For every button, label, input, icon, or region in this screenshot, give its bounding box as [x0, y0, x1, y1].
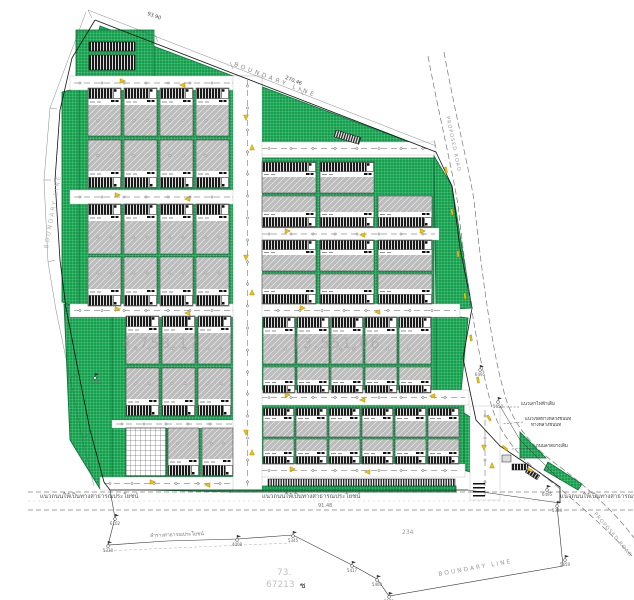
- office-mark: [150, 205, 153, 208]
- label-mark: [126, 174, 131, 175]
- roof-vent: [146, 236, 148, 238]
- label-mark: [147, 172, 151, 174]
- roof-vent: [169, 154, 171, 156]
- loading-dock: [89, 296, 114, 306]
- office-mark: [353, 409, 356, 412]
- label-mark: [133, 102, 137, 103]
- label-mark: [355, 452, 358, 454]
- label-mark: [322, 252, 327, 253]
- loading-dock: [379, 241, 425, 250]
- label-mark: [226, 400, 229, 402]
- manhole: [422, 469, 424, 471]
- office-mark: [386, 409, 389, 412]
- crosswalk-bar: [473, 487, 485, 489]
- label-mark: [404, 453, 408, 454]
- manhole: [400, 147, 402, 149]
- manhole: [312, 469, 314, 471]
- manhole: [246, 129, 248, 131]
- survey-point-label: 4008: [232, 542, 243, 547]
- manhole: [277, 309, 279, 311]
- label-mark: [353, 381, 357, 383]
- office-mark: [367, 241, 370, 244]
- label-mark: [388, 452, 391, 454]
- manhole: [143, 423, 145, 425]
- label-mark: [358, 329, 361, 331]
- green-area: [434, 156, 472, 310]
- label-mark: [198, 174, 203, 175]
- label-mark: [305, 453, 309, 454]
- survey-flag: [115, 514, 119, 517]
- label-mark: [387, 381, 391, 383]
- label-mark: [152, 172, 155, 174]
- manhole: [444, 396, 446, 398]
- label-mark: [169, 102, 173, 103]
- label-mark: [306, 213, 310, 215]
- label-mark: [205, 102, 209, 103]
- manhole: [101, 309, 103, 311]
- manhole: [145, 196, 147, 198]
- roof-vent: [97, 236, 99, 238]
- label-mark: [380, 214, 385, 215]
- label-mark: [219, 290, 223, 292]
- manhole: [290, 396, 292, 398]
- manhole: [246, 393, 248, 395]
- label-mark: [421, 417, 424, 419]
- label-mark: [388, 417, 391, 419]
- office-mark: [150, 89, 153, 92]
- survey-point: [107, 545, 110, 548]
- boundary-line: [155, 35, 158, 42]
- office-mark: [419, 460, 422, 463]
- office-mark: [114, 302, 117, 305]
- manhole: [312, 147, 314, 149]
- label-mark: [188, 290, 191, 292]
- manhole: [246, 327, 248, 329]
- label-mark: [371, 453, 375, 454]
- label-mark: [329, 252, 333, 253]
- loading-dock: [297, 409, 320, 416]
- office-mark: [390, 318, 393, 321]
- office-mark: [424, 318, 427, 321]
- label-mark: [205, 218, 209, 219]
- label-mark: [340, 331, 344, 332]
- label-mark: [128, 402, 133, 403]
- label-mark: [422, 290, 426, 292]
- manhole: [219, 482, 221, 484]
- label-mark: [205, 174, 209, 175]
- manhole: [268, 396, 270, 398]
- survey-point-label: 6495: [542, 492, 553, 497]
- manhole: [246, 239, 248, 241]
- loading-dock: [332, 386, 356, 393]
- office-mark: [222, 184, 225, 187]
- label-mark: [311, 213, 314, 215]
- loading-dock: [330, 409, 353, 416]
- manhole: [378, 396, 380, 398]
- label-mark: [223, 460, 227, 462]
- survey-flag: [108, 541, 112, 544]
- loading-dock: [125, 178, 150, 188]
- loading-dock: [264, 386, 288, 393]
- label-mark: [189, 460, 193, 462]
- label-mark: [224, 100, 227, 102]
- label-mark: [374, 331, 378, 332]
- label-mark: [364, 453, 369, 454]
- office-mark: [114, 205, 117, 208]
- label-mark: [133, 174, 137, 175]
- office-mark: [186, 89, 189, 92]
- manhole: [189, 82, 191, 84]
- manhole: [175, 482, 177, 484]
- roof-vent: [386, 348, 388, 350]
- label-mark: [162, 218, 167, 219]
- office-mark: [114, 89, 117, 92]
- manhole: [246, 217, 248, 219]
- survey-point-label: 5345: [288, 538, 299, 543]
- label-mark: [272, 331, 276, 332]
- manhole: [79, 82, 81, 84]
- label-mark: [219, 216, 223, 218]
- roof-vent: [182, 119, 184, 121]
- manhole: [484, 481, 486, 483]
- manhole: [321, 309, 323, 311]
- label-mark: [171, 330, 175, 331]
- manhole: [312, 396, 314, 398]
- roof-vent: [110, 236, 112, 238]
- label-mark: [265, 453, 270, 454]
- manhole: [131, 482, 133, 484]
- loading-dock: [197, 296, 222, 306]
- road-stud: [464, 293, 467, 299]
- roof-vent: [182, 272, 184, 274]
- manhole: [290, 233, 292, 235]
- label-mark: [171, 402, 175, 403]
- label-mark: [355, 417, 358, 419]
- office-mark: [309, 223, 312, 226]
- label-mark: [265, 418, 270, 419]
- label-mark: [97, 102, 101, 103]
- label-mark: [374, 382, 378, 383]
- label-mark: [271, 291, 275, 292]
- manhole: [187, 423, 189, 425]
- roof-vent: [110, 154, 112, 156]
- crosswalk-bar: [473, 483, 485, 485]
- loading-dock: [400, 318, 424, 328]
- label-mark: [219, 172, 223, 174]
- label-mark: [427, 213, 430, 215]
- label-mark: [272, 418, 276, 419]
- label-mark: [408, 331, 412, 332]
- manhole: [123, 309, 125, 311]
- label-mark: [427, 290, 430, 292]
- label-mark: [264, 291, 269, 292]
- manhole: [165, 423, 167, 425]
- label-mark: [422, 213, 426, 215]
- loading-dock: [298, 386, 322, 393]
- label-mark: [90, 218, 95, 219]
- label-mark: [188, 216, 191, 218]
- loading-dock: [89, 89, 114, 99]
- label-mark: [369, 251, 372, 253]
- label-mark: [430, 453, 435, 454]
- loading-dock: [199, 317, 224, 327]
- label-mark: [299, 331, 304, 332]
- label-mark: [289, 417, 292, 419]
- label-mark: [211, 462, 215, 463]
- label-mark: [387, 214, 391, 215]
- manhole: [123, 82, 125, 84]
- office-mark: [188, 412, 191, 415]
- label-mark: [147, 290, 151, 292]
- label-mark: [149, 328, 153, 330]
- roof-vent: [284, 348, 286, 350]
- boundary-line: [50, 108, 57, 109]
- green-area: [436, 314, 468, 392]
- label-mark: [128, 330, 133, 331]
- label-mark: [200, 402, 205, 403]
- boundary-line: [108, 490, 563, 596]
- loading-dock: [161, 296, 186, 306]
- loading-dock: [363, 409, 386, 416]
- manhole: [422, 233, 424, 235]
- label-mark: [284, 417, 288, 419]
- roof-vent: [169, 236, 171, 238]
- office-mark: [222, 205, 225, 208]
- label-mark: [369, 213, 372, 215]
- label-mark: [205, 292, 209, 293]
- manhole: [246, 437, 248, 439]
- label-mark: [369, 173, 372, 175]
- label-mark: [383, 452, 387, 454]
- survey-point: [236, 539, 239, 542]
- survey-point-label: 5330: [103, 548, 114, 553]
- label-mark: [264, 252, 269, 253]
- office-mark: [452, 460, 455, 463]
- manhole: [356, 396, 358, 398]
- label-mark: [162, 174, 167, 175]
- roof-vent: [373, 348, 375, 350]
- label-mark: [392, 329, 395, 331]
- loading-dock: [203, 466, 226, 476]
- manhole: [387, 309, 389, 311]
- office-mark: [288, 389, 291, 392]
- label-mark: [322, 452, 325, 454]
- label-mark: [416, 417, 420, 419]
- loading-dock: [264, 457, 287, 464]
- manhole: [246, 459, 248, 461]
- label-mark: [371, 418, 375, 419]
- label-mark: [97, 218, 101, 219]
- label-mark: [188, 172, 191, 174]
- manhole: [246, 107, 248, 109]
- label-mark: [306, 382, 310, 383]
- manhole: [268, 147, 270, 149]
- roof-vent: [97, 119, 99, 121]
- roof-vent: [182, 236, 184, 238]
- survey-point: [479, 369, 482, 372]
- manhole: [356, 233, 358, 235]
- office-mark: [224, 317, 227, 320]
- label-mark: [265, 382, 270, 383]
- label-mark: [154, 328, 157, 330]
- manhole: [246, 349, 248, 351]
- site-plan-canvas: 5330400853456162541754635273565953246495…: [0, 0, 634, 600]
- manhole: [197, 482, 199, 484]
- amenity-building: [89, 42, 135, 51]
- label-mark: [397, 453, 402, 454]
- label-mark: [322, 214, 327, 215]
- survey-point: [292, 535, 295, 538]
- office-mark: [356, 389, 359, 392]
- manhole: [268, 233, 270, 235]
- loading-dock: [263, 218, 309, 227]
- label-mark: [169, 292, 173, 293]
- label-mark: [306, 173, 310, 175]
- label-mark: [264, 174, 269, 175]
- label-mark: [271, 252, 275, 253]
- loading-dock: [379, 218, 425, 227]
- survey-point: [546, 489, 549, 492]
- survey-flag: [565, 555, 569, 558]
- office-mark: [150, 184, 153, 187]
- label-mark: [97, 292, 101, 293]
- label-mark: [331, 418, 336, 419]
- roof-vent: [133, 236, 135, 238]
- label-mark: [338, 418, 342, 419]
- survey-flag: [237, 535, 241, 538]
- label-mark: [224, 290, 227, 292]
- manhole: [246, 195, 248, 197]
- manhole: [312, 233, 314, 235]
- label-mark: [319, 329, 323, 331]
- survey-point: [376, 579, 379, 582]
- office-mark: [186, 205, 189, 208]
- office-mark: [425, 241, 428, 244]
- manhole: [167, 82, 169, 84]
- manhole: [334, 469, 336, 471]
- manhole: [378, 147, 380, 149]
- crosswalk-bar: [473, 495, 485, 497]
- label-mark: [421, 381, 425, 383]
- label-mark: [298, 418, 303, 419]
- manhole: [334, 147, 336, 149]
- manhole: [101, 82, 103, 84]
- office-mark: [367, 300, 370, 303]
- amenity-building: [89, 55, 135, 70]
- label-mark: [116, 216, 119, 218]
- label-mark: [364, 213, 368, 215]
- loading-dock: [125, 89, 150, 99]
- loading-dock: [429, 409, 452, 416]
- manhole: [484, 437, 486, 439]
- roof-vent: [407, 348, 409, 350]
- roof-vent: [210, 442, 212, 444]
- roof-vent: [184, 347, 186, 349]
- manhole: [356, 469, 358, 471]
- label-mark: [198, 218, 203, 219]
- label-mark: [333, 331, 338, 332]
- label-mark: [126, 102, 131, 103]
- office-mark: [188, 317, 191, 320]
- roof-vent: [207, 382, 209, 384]
- label-mark: [284, 452, 288, 454]
- label-mark: [169, 218, 173, 219]
- roof-vent: [339, 348, 341, 350]
- manhole: [334, 233, 336, 235]
- label-mark: [311, 290, 314, 292]
- manhole: [167, 196, 169, 198]
- survey-point-label: 6495: [475, 372, 486, 377]
- survey-point: [351, 565, 354, 568]
- manhole: [400, 233, 402, 235]
- label-mark: [135, 330, 139, 331]
- loading-dock: [321, 241, 367, 250]
- manhole: [145, 82, 147, 84]
- label-mark: [350, 417, 354, 419]
- loading-dock: [199, 406, 224, 416]
- loading-dock: [127, 317, 152, 327]
- roof-vent: [189, 442, 191, 444]
- label-mark: [154, 400, 157, 402]
- boundary-line: [502, 422, 523, 424]
- loading-dock: [125, 205, 150, 215]
- survey-flag: [498, 397, 502, 400]
- survey-point: [497, 401, 500, 404]
- office-mark: [287, 460, 290, 463]
- manhole: [334, 396, 336, 398]
- roof-vent: [182, 154, 184, 156]
- loading-dock: [127, 406, 152, 416]
- label-mark: [430, 418, 435, 419]
- label-mark: [449, 417, 453, 419]
- manhole: [145, 309, 147, 311]
- roof-vent: [148, 347, 150, 349]
- label-mark: [311, 173, 314, 175]
- office-mark: [425, 223, 428, 226]
- roof-vent: [420, 348, 422, 350]
- label-mark: [353, 329, 357, 331]
- manhole: [378, 469, 380, 471]
- site-plan-page: 5330400853456162541754635273565953246495…: [0, 0, 634, 600]
- roof-vent: [218, 272, 220, 274]
- loading-dock: [363, 457, 386, 464]
- loading-dock: [263, 241, 309, 250]
- loading-dock: [297, 457, 320, 464]
- loading-dock: [321, 218, 367, 227]
- label-mark: [198, 102, 203, 103]
- label-mark: [401, 382, 406, 383]
- loading-dock: [161, 205, 186, 215]
- office-mark: [322, 389, 325, 392]
- roof-vent: [218, 236, 220, 238]
- roof-vent: [110, 272, 112, 274]
- loading-dock: [366, 318, 390, 328]
- manhole: [246, 415, 248, 417]
- label-mark: [116, 172, 119, 174]
- label-mark: [272, 453, 276, 454]
- label-mark: [147, 100, 151, 102]
- label-mark: [198, 292, 203, 293]
- loading-dock: [263, 163, 309, 172]
- road-stud: [444, 167, 447, 173]
- label-mark: [416, 452, 420, 454]
- label-mark: [188, 100, 191, 102]
- roof-vent: [176, 442, 178, 444]
- label-mark: [322, 417, 325, 419]
- green-area: [520, 432, 546, 458]
- office-mark: [425, 300, 428, 303]
- label-mark: [317, 452, 321, 454]
